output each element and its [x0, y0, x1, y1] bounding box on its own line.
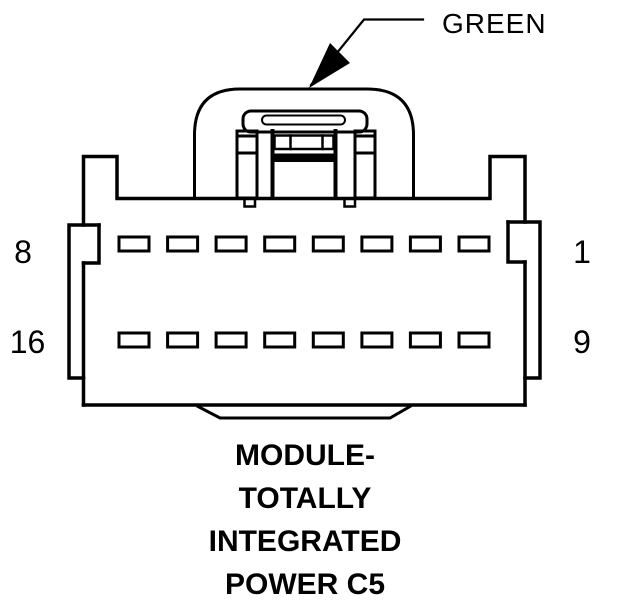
pin-cavity: [410, 333, 440, 347]
latch-right-rail: [355, 131, 375, 198]
pin-cavity: [168, 333, 198, 347]
connector-title-line: POWER C5: [155, 563, 455, 600]
latch-right-rail-box: [355, 136, 375, 153]
connector-body-outline: [69, 157, 540, 419]
pin-cavity: [313, 237, 343, 251]
wire-color-label: GREEN: [442, 10, 547, 38]
connector-diagram: GREEN 8 1 16 9 MODULE- TOTALLY INTEGRATE…: [0, 0, 624, 600]
right-notch: [508, 222, 525, 262]
pin-label-row2-right: 9: [563, 326, 601, 358]
pin-cavity: [216, 333, 246, 347]
pin-cavity: [362, 333, 392, 347]
pin-cavity: [459, 237, 489, 251]
pin-cavity: [216, 237, 246, 251]
latch-cell-dividers: [291, 136, 323, 150]
connector-title-line: MODULE-: [155, 434, 455, 477]
pin-label-row1-right: 1: [563, 236, 601, 268]
pin-row-bottom: [119, 333, 489, 347]
body-top-edge: [84, 157, 526, 226]
pin-cavity: [119, 237, 149, 251]
latch-cell-row: [275, 136, 334, 150]
pin-row-top: [119, 237, 489, 251]
latch-assembly: [195, 89, 414, 207]
green-callout-leader: [309, 20, 423, 89]
latch-cap-inner: [262, 116, 345, 125]
pin-cavity: [459, 333, 489, 347]
pin-cavity: [410, 237, 440, 251]
latch-left-rail-box: [237, 136, 257, 153]
pin-cavity: [119, 333, 149, 347]
latch-cross-bar: [271, 154, 337, 163]
pin-label-row1-left: 8: [4, 236, 42, 268]
latch-left-rail: [237, 131, 257, 198]
pin-label-row2-left: 16: [0, 326, 55, 358]
connector-title-line: INTEGRATED: [155, 520, 455, 563]
pin-cavity: [265, 237, 295, 251]
leader-arrowhead-icon: [309, 43, 350, 88]
pin-cavity: [313, 333, 343, 347]
connector-title: MODULE- TOTALLY INTEGRATED POWER C5: [155, 434, 455, 600]
pin-cavity: [265, 333, 295, 347]
bottom-bump: [198, 407, 410, 419]
left-notch: [84, 225, 100, 263]
connector-title-line: TOTALLY: [155, 477, 455, 520]
latch-dome: [195, 89, 414, 198]
pin-cavity: [362, 237, 392, 251]
pin-cavity: [168, 237, 198, 251]
